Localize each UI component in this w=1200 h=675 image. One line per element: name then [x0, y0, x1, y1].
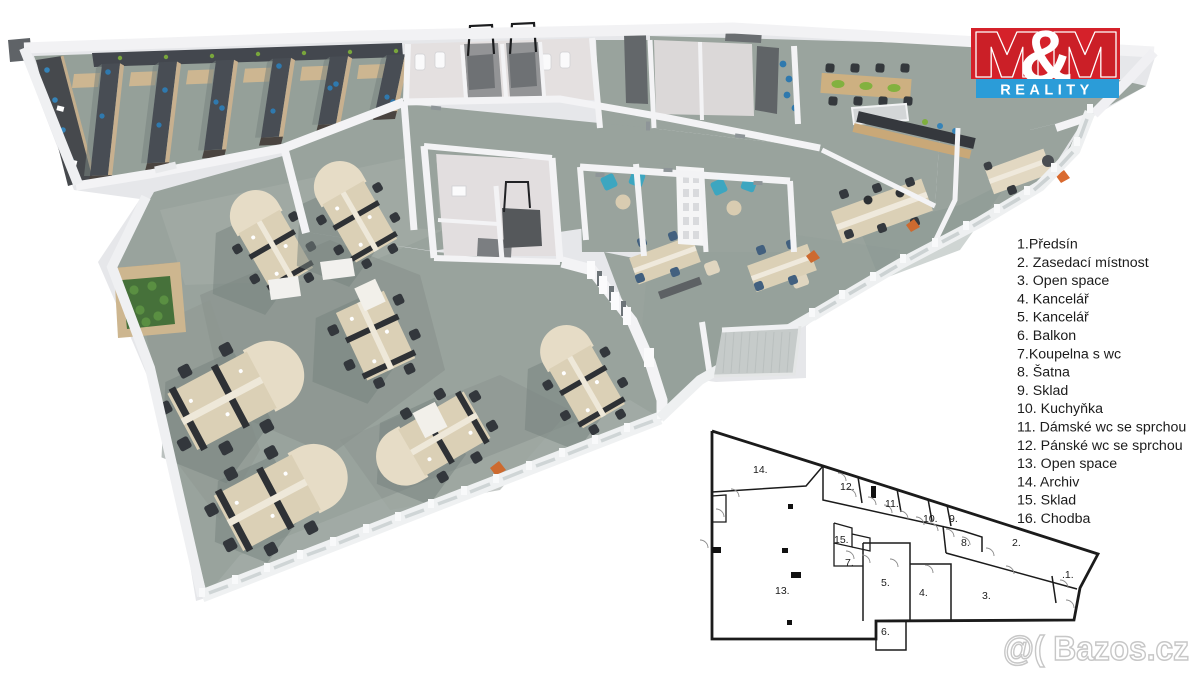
- svg-text:14.: 14.: [753, 464, 768, 476]
- svg-text:REALITY: REALITY: [1000, 83, 1094, 99]
- svg-text:12. Pánské wc se sprchou: 12. Pánské wc se sprchou: [1017, 438, 1183, 454]
- svg-text:7.: 7.: [845, 557, 854, 569]
- svg-text:15.: 15.: [834, 534, 849, 546]
- svg-text:11.: 11.: [885, 498, 899, 510]
- svg-text:2.: 2.: [1012, 537, 1021, 549]
- svg-text:3.: 3.: [982, 590, 991, 602]
- svg-text:5.: 5.: [881, 577, 890, 589]
- svg-text:6. Balkon: 6. Balkon: [1017, 328, 1076, 344]
- svg-text:9.: 9.: [949, 513, 958, 525]
- svg-text:9. Sklad: 9. Sklad: [1017, 383, 1068, 399]
- svg-text:.1.: .1.: [1062, 569, 1074, 581]
- svg-text:13.: 13.: [775, 585, 790, 597]
- svg-text:3. Open space: 3. Open space: [1017, 273, 1109, 289]
- svg-text:@( Bazos.cz: @( Bazos.cz: [1003, 630, 1189, 668]
- svg-text:1.Předsín: 1.Předsín: [1017, 237, 1078, 253]
- svg-text:2. Zasedací místnost: 2. Zasedací místnost: [1017, 255, 1149, 271]
- svg-text:16. Chodba: 16. Chodba: [1017, 511, 1090, 527]
- svg-text:8. Šatna: 8. Šatna: [1017, 364, 1070, 381]
- svg-text:10.: 10.: [923, 513, 938, 525]
- svg-text:7.Koupelna s wc: 7.Koupelna s wc: [1017, 346, 1121, 362]
- svg-text:4. Kancelář: 4. Kancelář: [1017, 291, 1089, 307]
- svg-text:10. Kuchyňka: 10. Kuchyňka: [1017, 401, 1103, 417]
- svg-text:4.: 4.: [919, 587, 928, 599]
- svg-text:15. Sklad: 15. Sklad: [1017, 493, 1076, 509]
- svg-text:6.: 6.: [881, 626, 890, 638]
- svg-text:8.: 8.: [961, 537, 970, 549]
- svg-text:11. Dámské wc se sprchou: 11. Dámské wc se sprchou: [1017, 420, 1186, 436]
- svg-text:5. Kancelář: 5. Kancelář: [1017, 310, 1089, 326]
- svg-text:14. Archiv: 14. Archiv: [1017, 474, 1080, 490]
- svg-text:13. Open space: 13. Open space: [1017, 456, 1117, 472]
- svg-text:12.: 12.: [840, 481, 855, 493]
